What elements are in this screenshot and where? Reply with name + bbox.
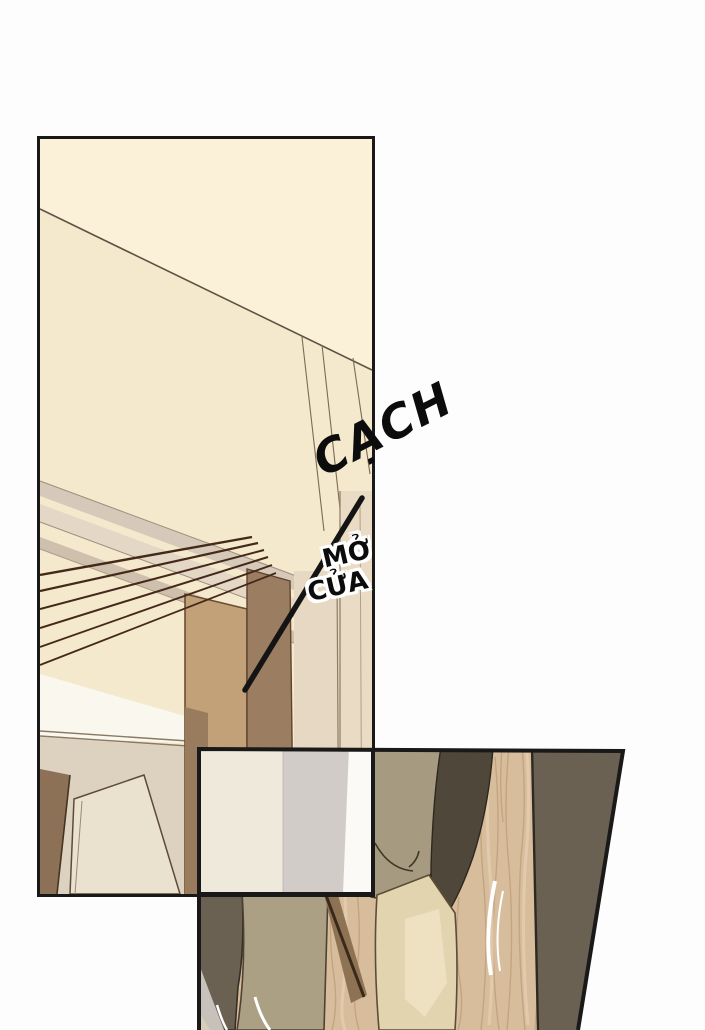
panel-2-artwork [197, 747, 626, 1030]
panel-feet-at-door [197, 747, 626, 1030]
open-door-dark [532, 747, 626, 1030]
comic-page: CẠCH MỞ CỬA [0, 0, 705, 1030]
trouser-leg-left [237, 892, 328, 1030]
white-door [197, 747, 371, 893]
